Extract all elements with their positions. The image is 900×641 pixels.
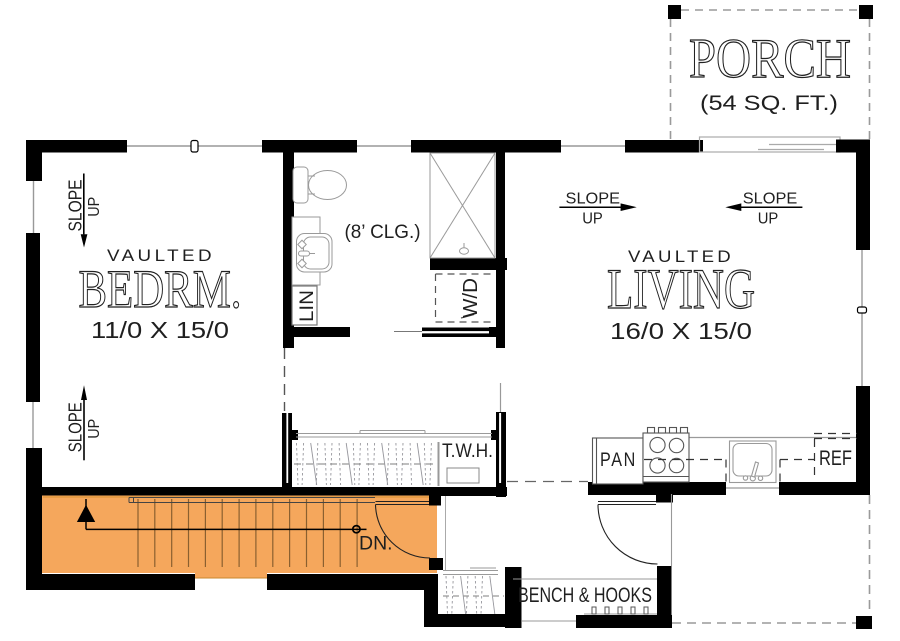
- svg-text:UP: UP: [86, 419, 103, 439]
- svg-text:DN.: DN.: [359, 533, 393, 555]
- svg-text:UP: UP: [582, 210, 603, 227]
- svg-text:LIVING: LIVING: [607, 258, 755, 321]
- svg-text:SLOPE: SLOPE: [65, 180, 85, 232]
- svg-text:UP: UP: [758, 210, 779, 227]
- svg-text:PORCH: PORCH: [689, 28, 851, 90]
- svg-text:(54 SQ. FT.): (54 SQ. FT.): [700, 92, 838, 115]
- svg-text:LIN: LIN: [297, 290, 318, 322]
- svg-text:UP: UP: [86, 197, 103, 217]
- svg-text:BENCH & HOOKS: BENCH & HOOKS: [518, 584, 652, 607]
- svg-text:16/0 X 15/0: 16/0 X 15/0: [610, 318, 752, 344]
- svg-text:SLOPE: SLOPE: [566, 190, 621, 207]
- svg-text:BEDRM.: BEDRM.: [79, 259, 242, 319]
- svg-text:SLOPE: SLOPE: [743, 190, 798, 207]
- svg-text:(8’ CLG.): (8’ CLG.): [345, 222, 421, 243]
- svg-text:W/D: W/D: [460, 278, 482, 318]
- svg-text:PAN: PAN: [600, 449, 637, 471]
- svg-text:REF: REF: [819, 447, 852, 470]
- svg-text:11/0 X 15/0: 11/0 X 15/0: [91, 317, 229, 343]
- svg-text:T.W.H.: T.W.H.: [442, 441, 493, 462]
- svg-text:SLOPE: SLOPE: [66, 402, 86, 452]
